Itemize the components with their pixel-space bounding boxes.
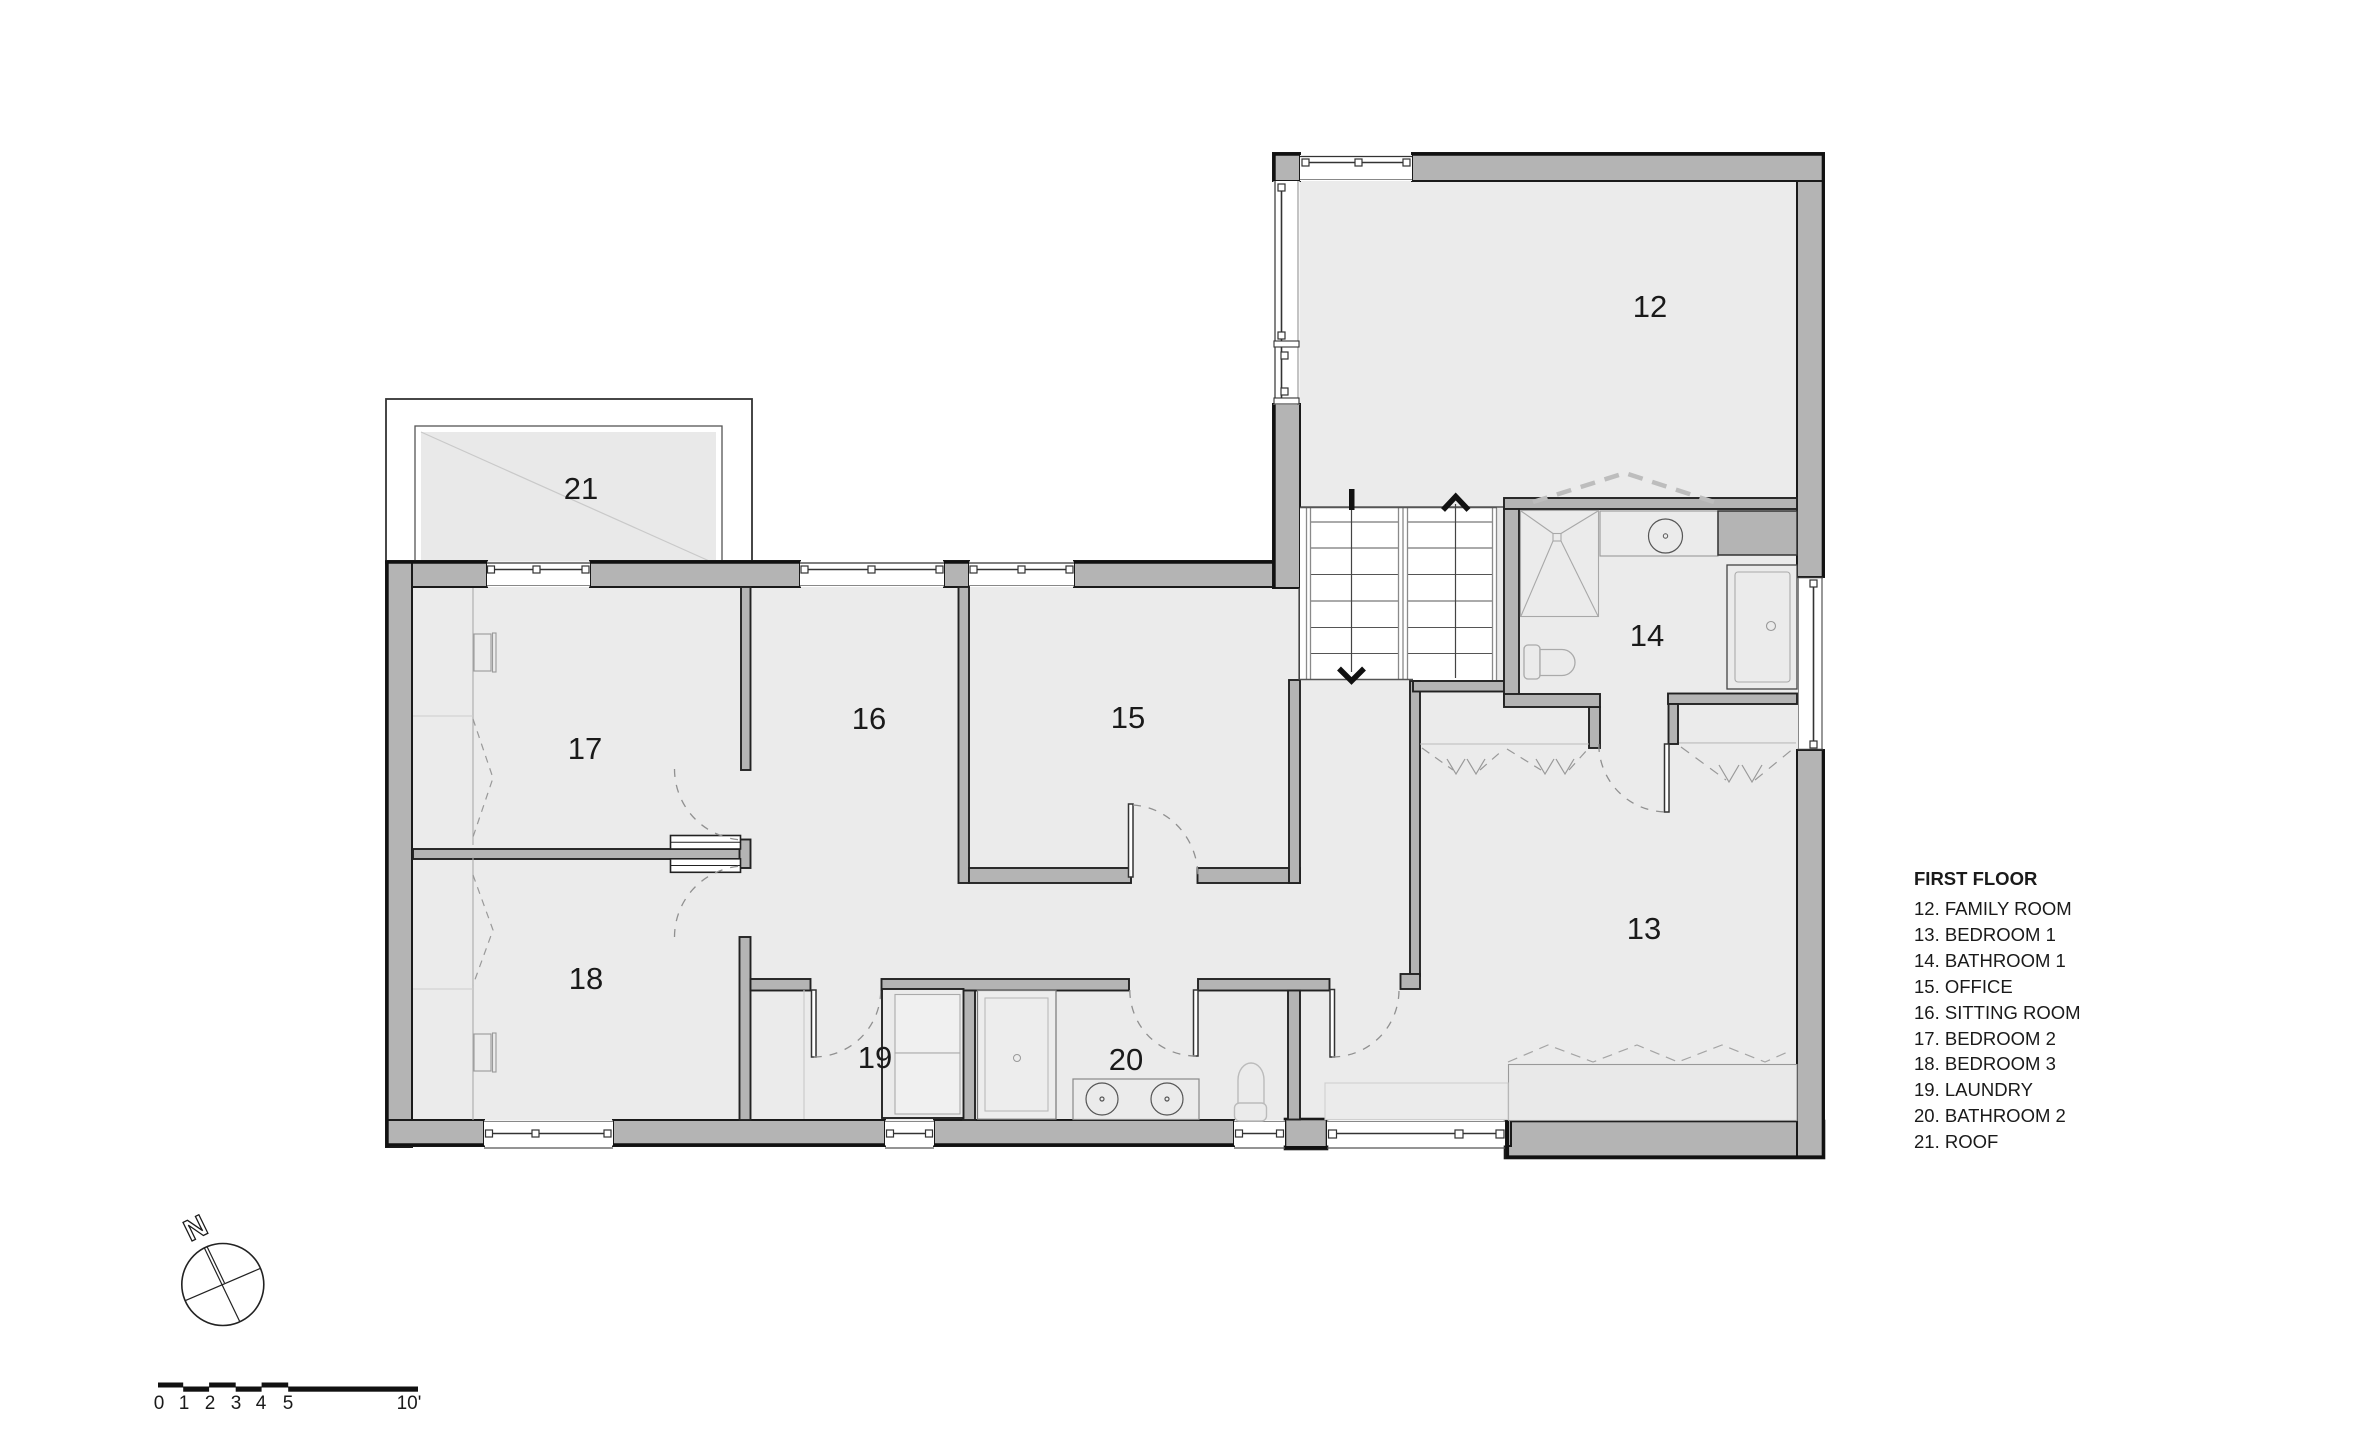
- svg-text:14: 14: [1630, 618, 1664, 653]
- svg-text:15: 15: [1111, 700, 1145, 735]
- svg-text:1: 1: [179, 1393, 190, 1414]
- svg-text:17: 17: [568, 731, 602, 766]
- svg-text:19: 19: [858, 1040, 892, 1075]
- svg-text:15. OFFICE: 15. OFFICE: [1914, 976, 2013, 997]
- svg-text:19. LAUNDRY: 19. LAUNDRY: [1914, 1079, 2033, 1100]
- svg-text:18: 18: [569, 961, 603, 996]
- svg-text:21. ROOF: 21. ROOF: [1914, 1131, 1998, 1152]
- svg-text:10': 10': [397, 1393, 422, 1414]
- svg-text:16: 16: [852, 701, 886, 736]
- svg-text:3: 3: [231, 1393, 242, 1414]
- svg-text:21: 21: [564, 471, 598, 506]
- svg-text:20. BATHROOM 2: 20. BATHROOM 2: [1914, 1105, 2066, 1126]
- svg-text:5: 5: [283, 1393, 294, 1414]
- svg-text:12. FAMILY ROOM: 12. FAMILY ROOM: [1914, 898, 2072, 919]
- svg-text:13. BEDROOM 1: 13. BEDROOM 1: [1914, 924, 2056, 945]
- svg-text:14. BATHROOM 1: 14. BATHROOM 1: [1914, 950, 2066, 971]
- svg-text:20: 20: [1109, 1042, 1143, 1077]
- svg-text:0: 0: [154, 1393, 165, 1414]
- svg-text:17. BEDROOM 2: 17. BEDROOM 2: [1914, 1028, 2056, 1049]
- svg-text:4: 4: [256, 1393, 267, 1414]
- svg-text:2: 2: [205, 1393, 216, 1414]
- svg-text:FIRST FLOOR: FIRST FLOOR: [1914, 868, 2037, 889]
- svg-text:16. SITTING ROOM: 16. SITTING ROOM: [1914, 1002, 2081, 1023]
- svg-text:13: 13: [1627, 911, 1661, 946]
- svg-text:18. BEDROOM 3: 18. BEDROOM 3: [1914, 1053, 2056, 1074]
- svg-text:12: 12: [1633, 289, 1667, 324]
